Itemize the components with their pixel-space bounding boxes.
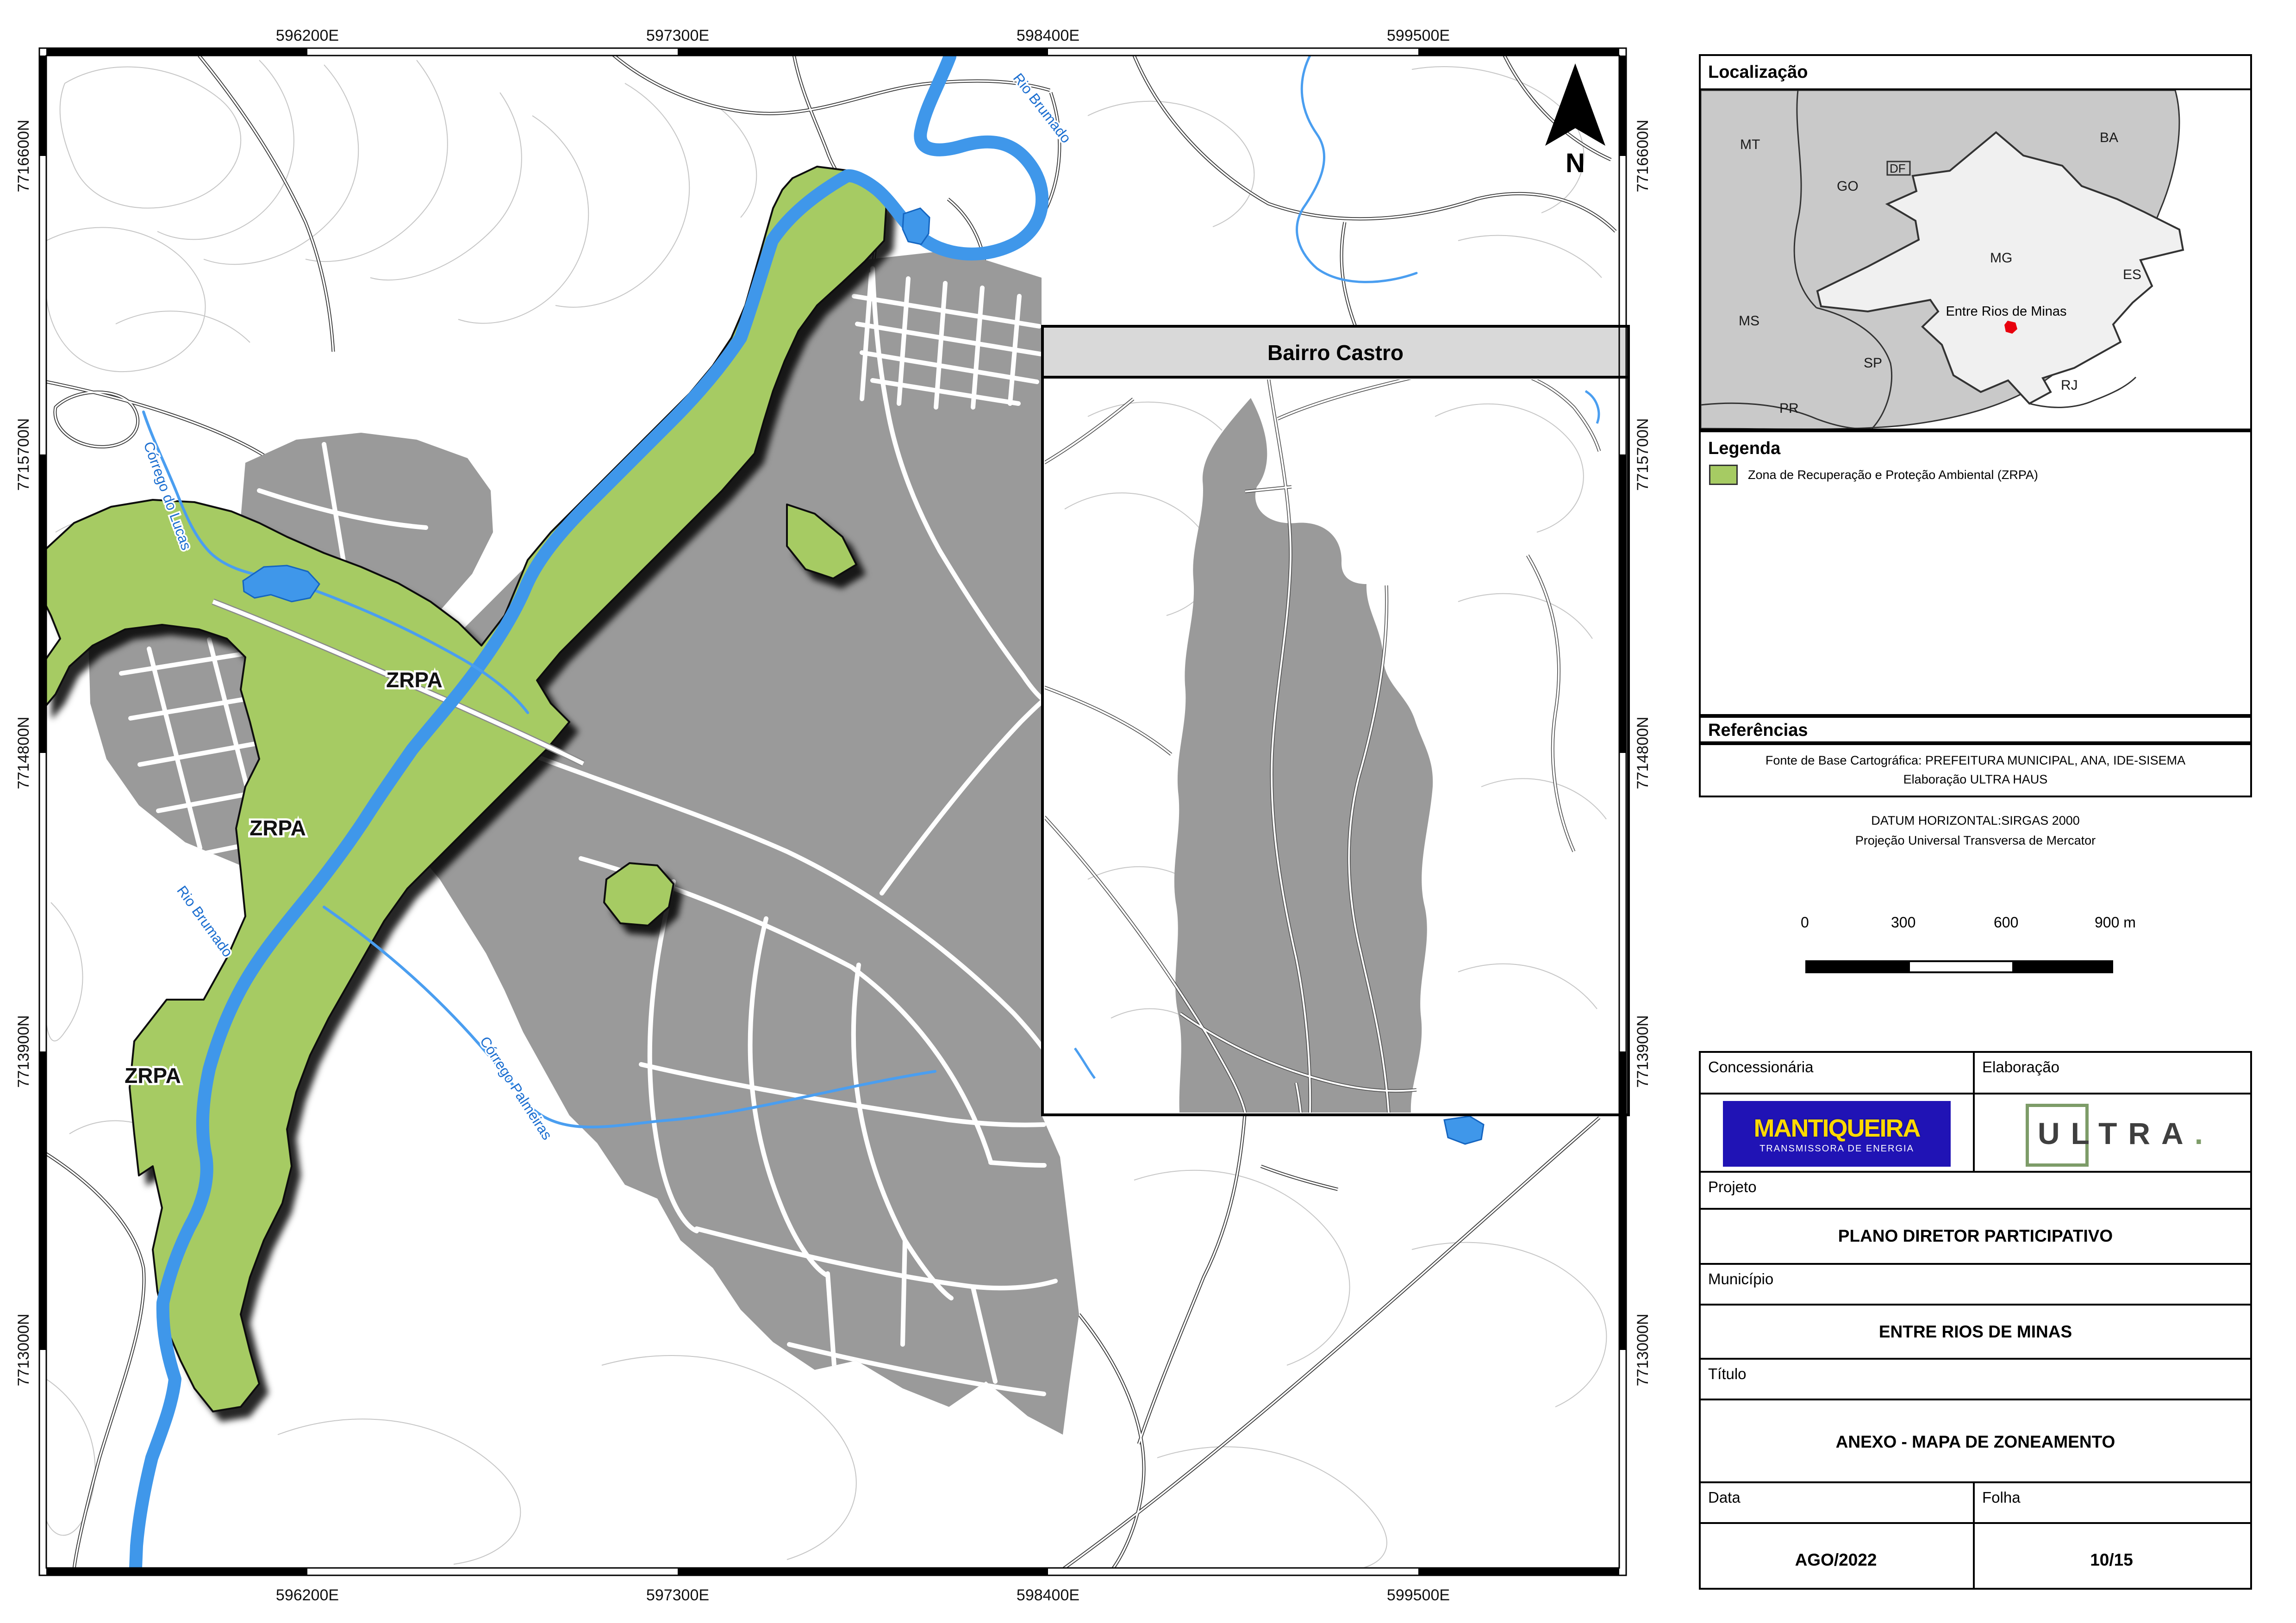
svg-text:599500E: 599500E bbox=[1387, 1586, 1450, 1604]
svg-text:7715700N: 7715700N bbox=[15, 418, 32, 491]
folha-value: 10/15 bbox=[1973, 1550, 2250, 1570]
svg-text:7714800N: 7714800N bbox=[1634, 717, 1652, 790]
legend-box: Legenda Zona de Recuperação e Proteção A… bbox=[1699, 430, 2252, 716]
zoning-map-sheet: { "colors": { "zrpa_green": "#a6cb63", "… bbox=[0, 0, 2296, 1623]
concessionaria-label: Concessionária bbox=[1701, 1053, 1978, 1098]
svg-text:PR: PR bbox=[1779, 401, 1799, 416]
legend-title: Legenda bbox=[1701, 432, 2250, 459]
references-title: Referências bbox=[1701, 718, 2250, 740]
ultra-logo: ULTRA. bbox=[2026, 1104, 2211, 1164]
projeto-label: Projeto bbox=[1701, 1173, 2258, 1213]
municipio-label: Município bbox=[1701, 1265, 2258, 1309]
ne-stream bbox=[1297, 56, 1416, 282]
datum-line2: Projeção Universal Transversa de Mercato… bbox=[1699, 833, 2252, 848]
concessionaria-logo-cell: MANTIQUEIRA TRANSMISSORA DE ENERGIA bbox=[1701, 1094, 1971, 1171]
localizacao-title: Localização bbox=[1701, 56, 2250, 82]
scale-tick-900: 900 m bbox=[2095, 914, 2136, 931]
mantiqueira-wordmark: MANTIQUEIRA bbox=[1754, 1114, 1920, 1143]
svg-text:MT: MT bbox=[1740, 137, 1760, 152]
svg-text:GO: GO bbox=[1837, 179, 1859, 194]
datum-line1: DATUM HORIZONTAL:SIRGAS 2000 bbox=[1699, 814, 2252, 828]
references-elaboration: Elaboração ULTRA HAUS bbox=[1701, 772, 2250, 787]
zrpa-legend-swatch bbox=[1709, 465, 1738, 485]
svg-text:597300E: 597300E bbox=[646, 1586, 709, 1604]
zrpa-label-1: ZRPA bbox=[386, 668, 443, 692]
localizacao-map-box: MT GO DF BA MG ES MS SP PR RJ Entre Rios… bbox=[1699, 88, 2252, 430]
svg-text:599500E: 599500E bbox=[1387, 27, 1450, 44]
localizacao-header: Localização bbox=[1699, 54, 2252, 90]
scale-tick-300: 300 bbox=[1891, 914, 1915, 931]
scale-tick-600: 600 bbox=[1994, 914, 2018, 931]
svg-text:7715700N: 7715700N bbox=[1634, 418, 1652, 491]
folha-label: Folha bbox=[1973, 1483, 2259, 1528]
info-table: Concessionária Elaboração MANTIQUEIRA TR… bbox=[1699, 1051, 2252, 1590]
svg-text:596200E: 596200E bbox=[276, 27, 339, 44]
svg-text:597300E: 597300E bbox=[646, 27, 709, 44]
datum-note: DATUM HORIZONTAL:SIRGAS 2000 Projeção Un… bbox=[1699, 814, 2252, 848]
elaboracao-label: Elaboração bbox=[1973, 1053, 2259, 1098]
svg-text:MG: MG bbox=[1990, 250, 2012, 266]
localizacao-minimap: MT GO DF BA MG ES MS SP PR RJ Entre Rios… bbox=[1701, 90, 2250, 429]
data-value: AGO/2022 bbox=[1701, 1550, 1971, 1570]
titulo-label: Título bbox=[1701, 1360, 2258, 1404]
mantiqueira-subtitle: TRANSMISSORA DE ENERGIA bbox=[1759, 1144, 1914, 1154]
zrpa-legend-label: Zona de Recuperação e Proteção Ambiental… bbox=[1748, 468, 2038, 482]
data-label: Data bbox=[1701, 1483, 1978, 1528]
zrpa-label-3: ZRPA bbox=[125, 1063, 181, 1088]
svg-text:BA: BA bbox=[2100, 130, 2118, 145]
scale-tick-0: 0 bbox=[1801, 914, 1809, 931]
references-header: Referências bbox=[1699, 716, 2252, 743]
titulo-value: ANEXO - MAPA DE ZONEAMENTO bbox=[1701, 1432, 2250, 1452]
municipio-value: ENTRE RIOS DE MINAS bbox=[1701, 1322, 2250, 1342]
scale-bar-graphic bbox=[1805, 960, 2113, 973]
svg-text:7716600N: 7716600N bbox=[1634, 120, 1652, 193]
zrpa-label-2: ZRPA bbox=[250, 816, 306, 840]
references-source: Fonte de Base Cartográfica: PREFEITURA M… bbox=[1701, 753, 2250, 768]
svg-text:7713900N: 7713900N bbox=[1634, 1015, 1652, 1088]
svg-text:598400E: 598400E bbox=[1017, 27, 1079, 44]
svg-text:ES: ES bbox=[2123, 267, 2141, 282]
mantiqueira-logo: MANTIQUEIRA TRANSMISSORA DE ENERGIA bbox=[1723, 1101, 1951, 1167]
svg-text:598400E: 598400E bbox=[1017, 1586, 1079, 1604]
river-label-brumado-left: Rio Brumado bbox=[174, 883, 236, 960]
north-label: N bbox=[1566, 148, 1585, 178]
projeto-value: PLANO DIRETOR PARTICIPATIVO bbox=[1701, 1226, 2250, 1246]
svg-text:7714800N: 7714800N bbox=[15, 717, 32, 790]
inset-map: Bairro Castro bbox=[1042, 326, 1628, 1115]
svg-text:RJ: RJ bbox=[2061, 378, 2078, 393]
svg-text:7713000N: 7713000N bbox=[1634, 1314, 1652, 1387]
svg-text:7713900N: 7713900N bbox=[15, 1015, 32, 1088]
references-content: Fonte de Base Cartográfica: PREFEITURA M… bbox=[1699, 743, 2252, 797]
municipality-callout: Entre Rios de Minas bbox=[1946, 304, 2066, 319]
svg-text:596200E: 596200E bbox=[276, 1586, 339, 1604]
inset-title: Bairro Castro bbox=[1267, 341, 1404, 365]
scale-bar: 0 300 600 900 m bbox=[1699, 914, 2252, 979]
ultra-wordmark: ULTRA. bbox=[2038, 1116, 2214, 1151]
elaboracao-logo-cell: ULTRA. bbox=[1973, 1094, 2252, 1171]
svg-text:7716600N: 7716600N bbox=[15, 120, 32, 193]
svg-text:7713000N: 7713000N bbox=[15, 1314, 32, 1387]
svg-text:DF: DF bbox=[1890, 162, 1906, 175]
svg-text:MS: MS bbox=[1739, 313, 1759, 329]
river-label-brumado-top: Rio Brumado bbox=[1010, 70, 1074, 146]
svg-text:SP: SP bbox=[1864, 355, 1882, 371]
